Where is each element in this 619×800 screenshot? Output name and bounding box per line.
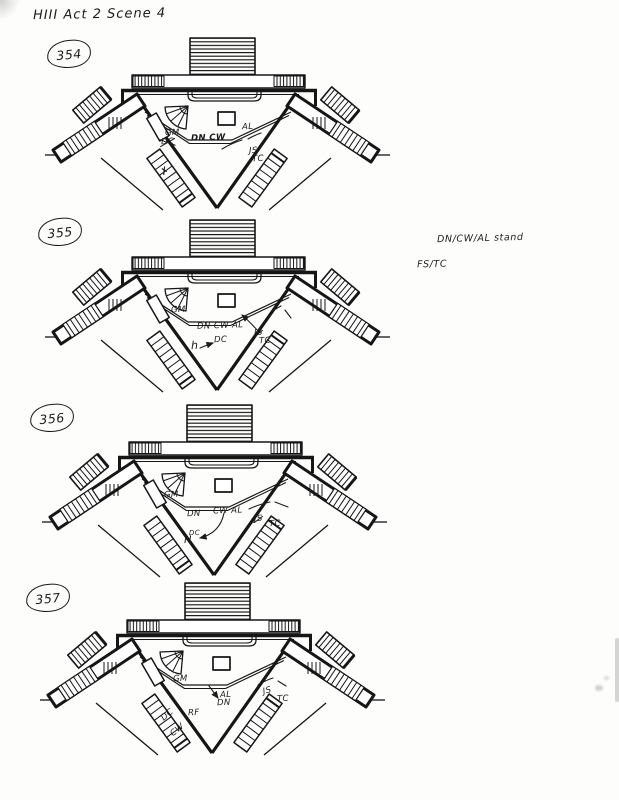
- blocking-annotation: CW AL: [213, 506, 243, 516]
- stage-plan-diagram: [42, 397, 387, 579]
- blocking-figure: 354GMDCDN CWALJSTC✗: [45, 30, 390, 212]
- blocking-annotation: AL: [242, 123, 254, 132]
- scan-artifact-corner: [0, 0, 20, 20]
- scan-artifact-edge: [615, 638, 619, 702]
- side-note: DN/CW/AL stand: [437, 233, 524, 245]
- blocking-annotation: GM: [173, 675, 188, 684]
- blocking-annotation: TC: [269, 520, 281, 529]
- blocking-annotation: H: [184, 536, 192, 546]
- blocking-annotation: RF: [188, 709, 200, 718]
- blocking-figure: 355GMDN CW ALDChJSTC: [45, 212, 390, 394]
- blocking-annotation: JS: [254, 515, 263, 524]
- blocking-annotation: DN: [187, 510, 201, 519]
- blocking-figure: 356GMDNCW ALJSTCDCH: [42, 397, 387, 579]
- blocking-annotation: DN CW AL: [197, 321, 244, 331]
- scanned-page: HIII Act 2 Scene 4 DN/CW/AL standFS/TC35…: [0, 0, 619, 800]
- blocking-annotation: GM: [164, 491, 179, 500]
- blocking-annotation: h: [191, 340, 199, 351]
- stage-plan-diagram: [45, 212, 390, 394]
- blocking-annotation: TC: [252, 155, 264, 164]
- blocking-annotation: DN: [217, 699, 231, 708]
- blocking-annotation: GM: [171, 306, 186, 315]
- stage-plan-diagram: [45, 30, 390, 212]
- blocking-annotation: TC: [259, 337, 271, 346]
- blocking-annotation: JS: [262, 686, 273, 696]
- scan-artifact-smudge: [595, 685, 603, 691]
- scan-artifact-smudge: [604, 676, 609, 680]
- blocking-annotation: DN CW: [191, 133, 226, 143]
- side-note: FS/TC: [417, 260, 447, 270]
- blocking-annotation: TC: [277, 695, 289, 704]
- blocking-annotation: DC: [214, 336, 228, 345]
- page-header-note: HIII Act 2 Scene 4: [33, 7, 166, 22]
- stage-plan-diagram: [40, 575, 385, 757]
- blocking-annotation: DC: [161, 138, 175, 147]
- blocking-figure: 357GMALDNJSTCRFDCCW: [40, 575, 385, 757]
